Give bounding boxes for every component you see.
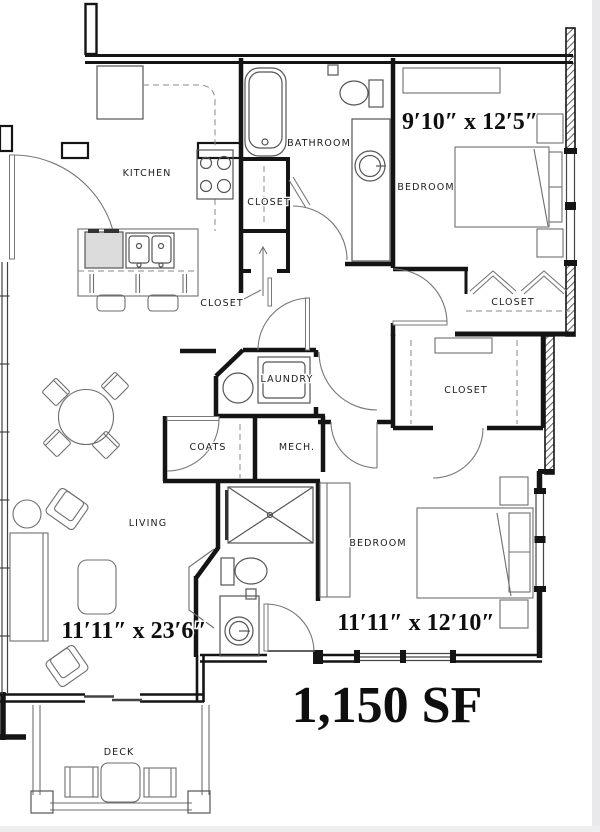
room-label-kitchen: KITCHEN — [123, 168, 172, 179]
floor-plan-page: KITCHEN BATHROOM CLOSET CLOSET BEDROOM C… — [0, 0, 600, 832]
armchair — [44, 644, 89, 688]
dresser — [403, 68, 500, 93]
bar-stool — [148, 295, 178, 311]
room-label-living: LIVING — [129, 518, 167, 529]
room-label-closet-bedroom1: CLOSET — [491, 297, 535, 308]
floor-plan-drawing: KITCHEN BATHROOM CLOSET CLOSET BEDROOM C… — [0, 0, 600, 832]
toilet — [235, 558, 267, 584]
bedroom1-furniture — [403, 68, 563, 257]
room-label-laundry: LAUNDRY — [261, 374, 314, 385]
room-labels: KITCHEN BATHROOM CLOSET CLOSET BEDROOM C… — [104, 138, 535, 758]
console — [10, 533, 48, 641]
room-label-mech: MECH. — [279, 442, 315, 453]
bar-stool — [97, 295, 125, 311]
deck-table — [101, 763, 140, 802]
room-label-deck: DECK — [104, 747, 135, 758]
dimension-bedroom2: 11′11″ x 12′10″ — [337, 610, 494, 636]
armchair — [44, 487, 89, 531]
room-label-closet-hall: CLOSET — [200, 298, 244, 309]
page-edge-right — [592, 0, 600, 832]
nightstand — [537, 114, 563, 143]
nightstand — [500, 600, 528, 628]
room-label-bedroom2: BEDROOM — [349, 538, 406, 549]
dimension-bedroom1: 9′10″ x 12′5″ — [402, 109, 538, 135]
bed — [417, 508, 533, 598]
bedroom2-furniture — [320, 477, 533, 628]
closet-label-leader — [244, 290, 261, 299]
bed — [455, 147, 549, 227]
bathroom2-fixtures — [189, 487, 313, 656]
deck — [31, 705, 210, 813]
dimension-living: 11′11″ x 23′6″ — [61, 618, 206, 644]
refrigerator — [97, 66, 143, 119]
dresser — [320, 483, 350, 597]
kitchen-fixtures — [78, 66, 233, 311]
dishwasher — [85, 232, 123, 268]
room-label-bedroom1: BEDROOM — [397, 182, 454, 193]
room-label-closet-walkin: CLOSET — [444, 385, 488, 396]
room-label-coats: COATS — [189, 442, 226, 453]
side-table — [13, 500, 41, 528]
dining-table — [59, 390, 114, 445]
area-label: 1,150 SF — [292, 677, 483, 734]
room-label-closet-bath: CLOSET — [247, 197, 291, 208]
page-edge-bottom — [0, 826, 600, 832]
ottoman — [78, 560, 116, 614]
room-label-bathroom: BATHROOM — [287, 138, 351, 149]
toilet — [340, 81, 368, 105]
nightstand — [500, 477, 528, 505]
water-heater — [223, 373, 253, 403]
vanity — [352, 119, 390, 261]
deck-post — [31, 791, 53, 813]
nightstand — [537, 229, 563, 257]
